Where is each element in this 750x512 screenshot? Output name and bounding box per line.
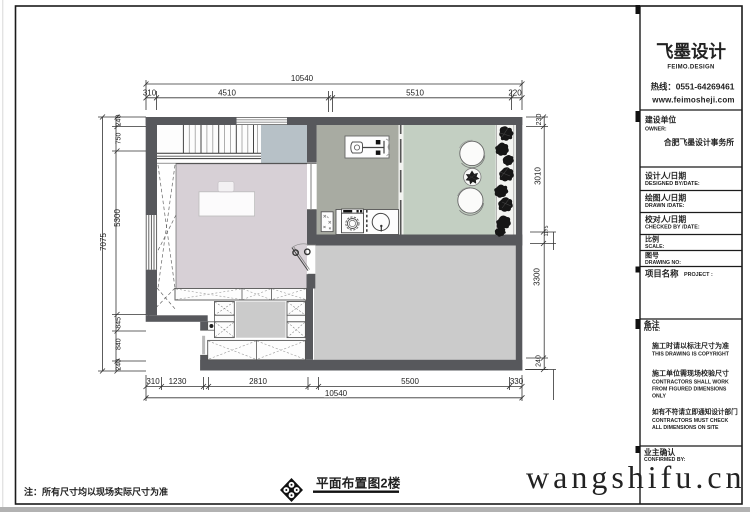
svg-text:3300: 3300 [533,268,542,286]
svg-text:合肥飞墨设计事务所: 合肥飞墨设计事务所 [663,137,734,147]
svg-text:比例: 比例 [645,235,659,244]
svg-text:飞墨设计: 飞墨设计 [656,42,726,62]
svg-text:240: 240 [115,115,122,127]
svg-text:校对人/日期: 校对人/日期 [645,214,686,224]
svg-text:NOTE:: NOTE: [644,327,660,333]
svg-text:施工单位需现场校验尺寸: 施工单位需现场校验尺寸 [652,369,729,378]
svg-text:SCALE:: SCALE: [645,244,665,250]
svg-text:PROJECT :: PROJECT : [684,272,713,278]
svg-text:THIS DRAWING IS COPYRIGHT: THIS DRAWING IS COPYRIGHT [652,352,730,358]
svg-text:330: 330 [510,377,524,386]
svg-text:1175: 1175 [544,225,550,236]
svg-text:建设单位: 建设单位 [644,115,676,125]
svg-text:3010: 3010 [534,167,543,185]
svg-text:310: 310 [143,89,157,98]
svg-text:310: 310 [146,377,160,386]
svg-text:业主确认: 业主确认 [644,447,675,457]
svg-text:10540: 10540 [325,389,348,398]
svg-text:840: 840 [115,338,122,350]
svg-text:CHECKED BY /DATE:: CHECKED BY /DATE: [645,225,700,231]
svg-text:5510: 5510 [406,89,424,98]
svg-text:4510: 4510 [218,89,236,98]
svg-text:FROM FIGURED DIMENSIONS: FROM FIGURED DIMENSIONS [652,387,727,393]
svg-text:10540: 10540 [291,74,314,83]
svg-text:1230: 1230 [169,377,187,386]
svg-text:注：所有尺寸均以现场实际尺寸为准: 注：所有尺寸均以现场实际尺寸为准 [24,486,168,497]
svg-text:wangshifu.cn: wangshifu.cn [526,459,746,495]
svg-text:240: 240 [536,355,543,367]
svg-text:项目名称: 项目名称 [645,269,679,279]
svg-text:5500: 5500 [401,377,419,386]
svg-text:ALL DIMENSIONS ON SITE: ALL DIMENSIONS ON SITE [652,425,719,431]
svg-text:220: 220 [508,89,522,98]
svg-text:2810: 2810 [249,377,267,386]
svg-text:230: 230 [536,114,543,126]
svg-text:750: 750 [115,133,122,145]
svg-text:OWNER:: OWNER: [645,127,667,133]
svg-text:7075: 7075 [99,233,108,251]
svg-text:设计人/日期: 设计人/日期 [645,171,686,181]
svg-text:绘图人/日期: 绘图人/日期 [645,193,686,203]
svg-text:DRAWING NO:: DRAWING NO: [645,260,681,266]
svg-text:240: 240 [115,359,122,371]
svg-text:热线：0551-64269461: 热线：0551-64269461 [651,82,735,92]
svg-text:845: 845 [115,317,122,329]
svg-text:CONTRACTORS MUST CHECK: CONTRACTORS MUST CHECK [652,418,729,424]
svg-text:图号: 图号 [645,251,659,260]
svg-text:5300: 5300 [113,209,122,227]
svg-text:FEIMO.DESIGN: FEIMO.DESIGN [667,65,714,71]
svg-text:平面布置图2楼: 平面布置图2楼 [316,476,401,491]
svg-text:DESIGNED BY/DATE:: DESIGNED BY/DATE: [645,181,700,187]
svg-text:施工时请以标注尺寸为准: 施工时请以标注尺寸为准 [652,341,729,350]
svg-text:CONTRACTORS SHALL WORK: CONTRACTORS SHALL WORK [652,380,729,386]
svg-text:www.feimosheji.com: www.feimosheji.com [651,96,734,105]
svg-text:DRAWN /DATE:: DRAWN /DATE: [645,203,685,209]
svg-text:ONLY: ONLY [652,394,666,400]
svg-text:如有不符请立即通知设计部门: 如有不符请立即通知设计部门 [652,407,738,416]
